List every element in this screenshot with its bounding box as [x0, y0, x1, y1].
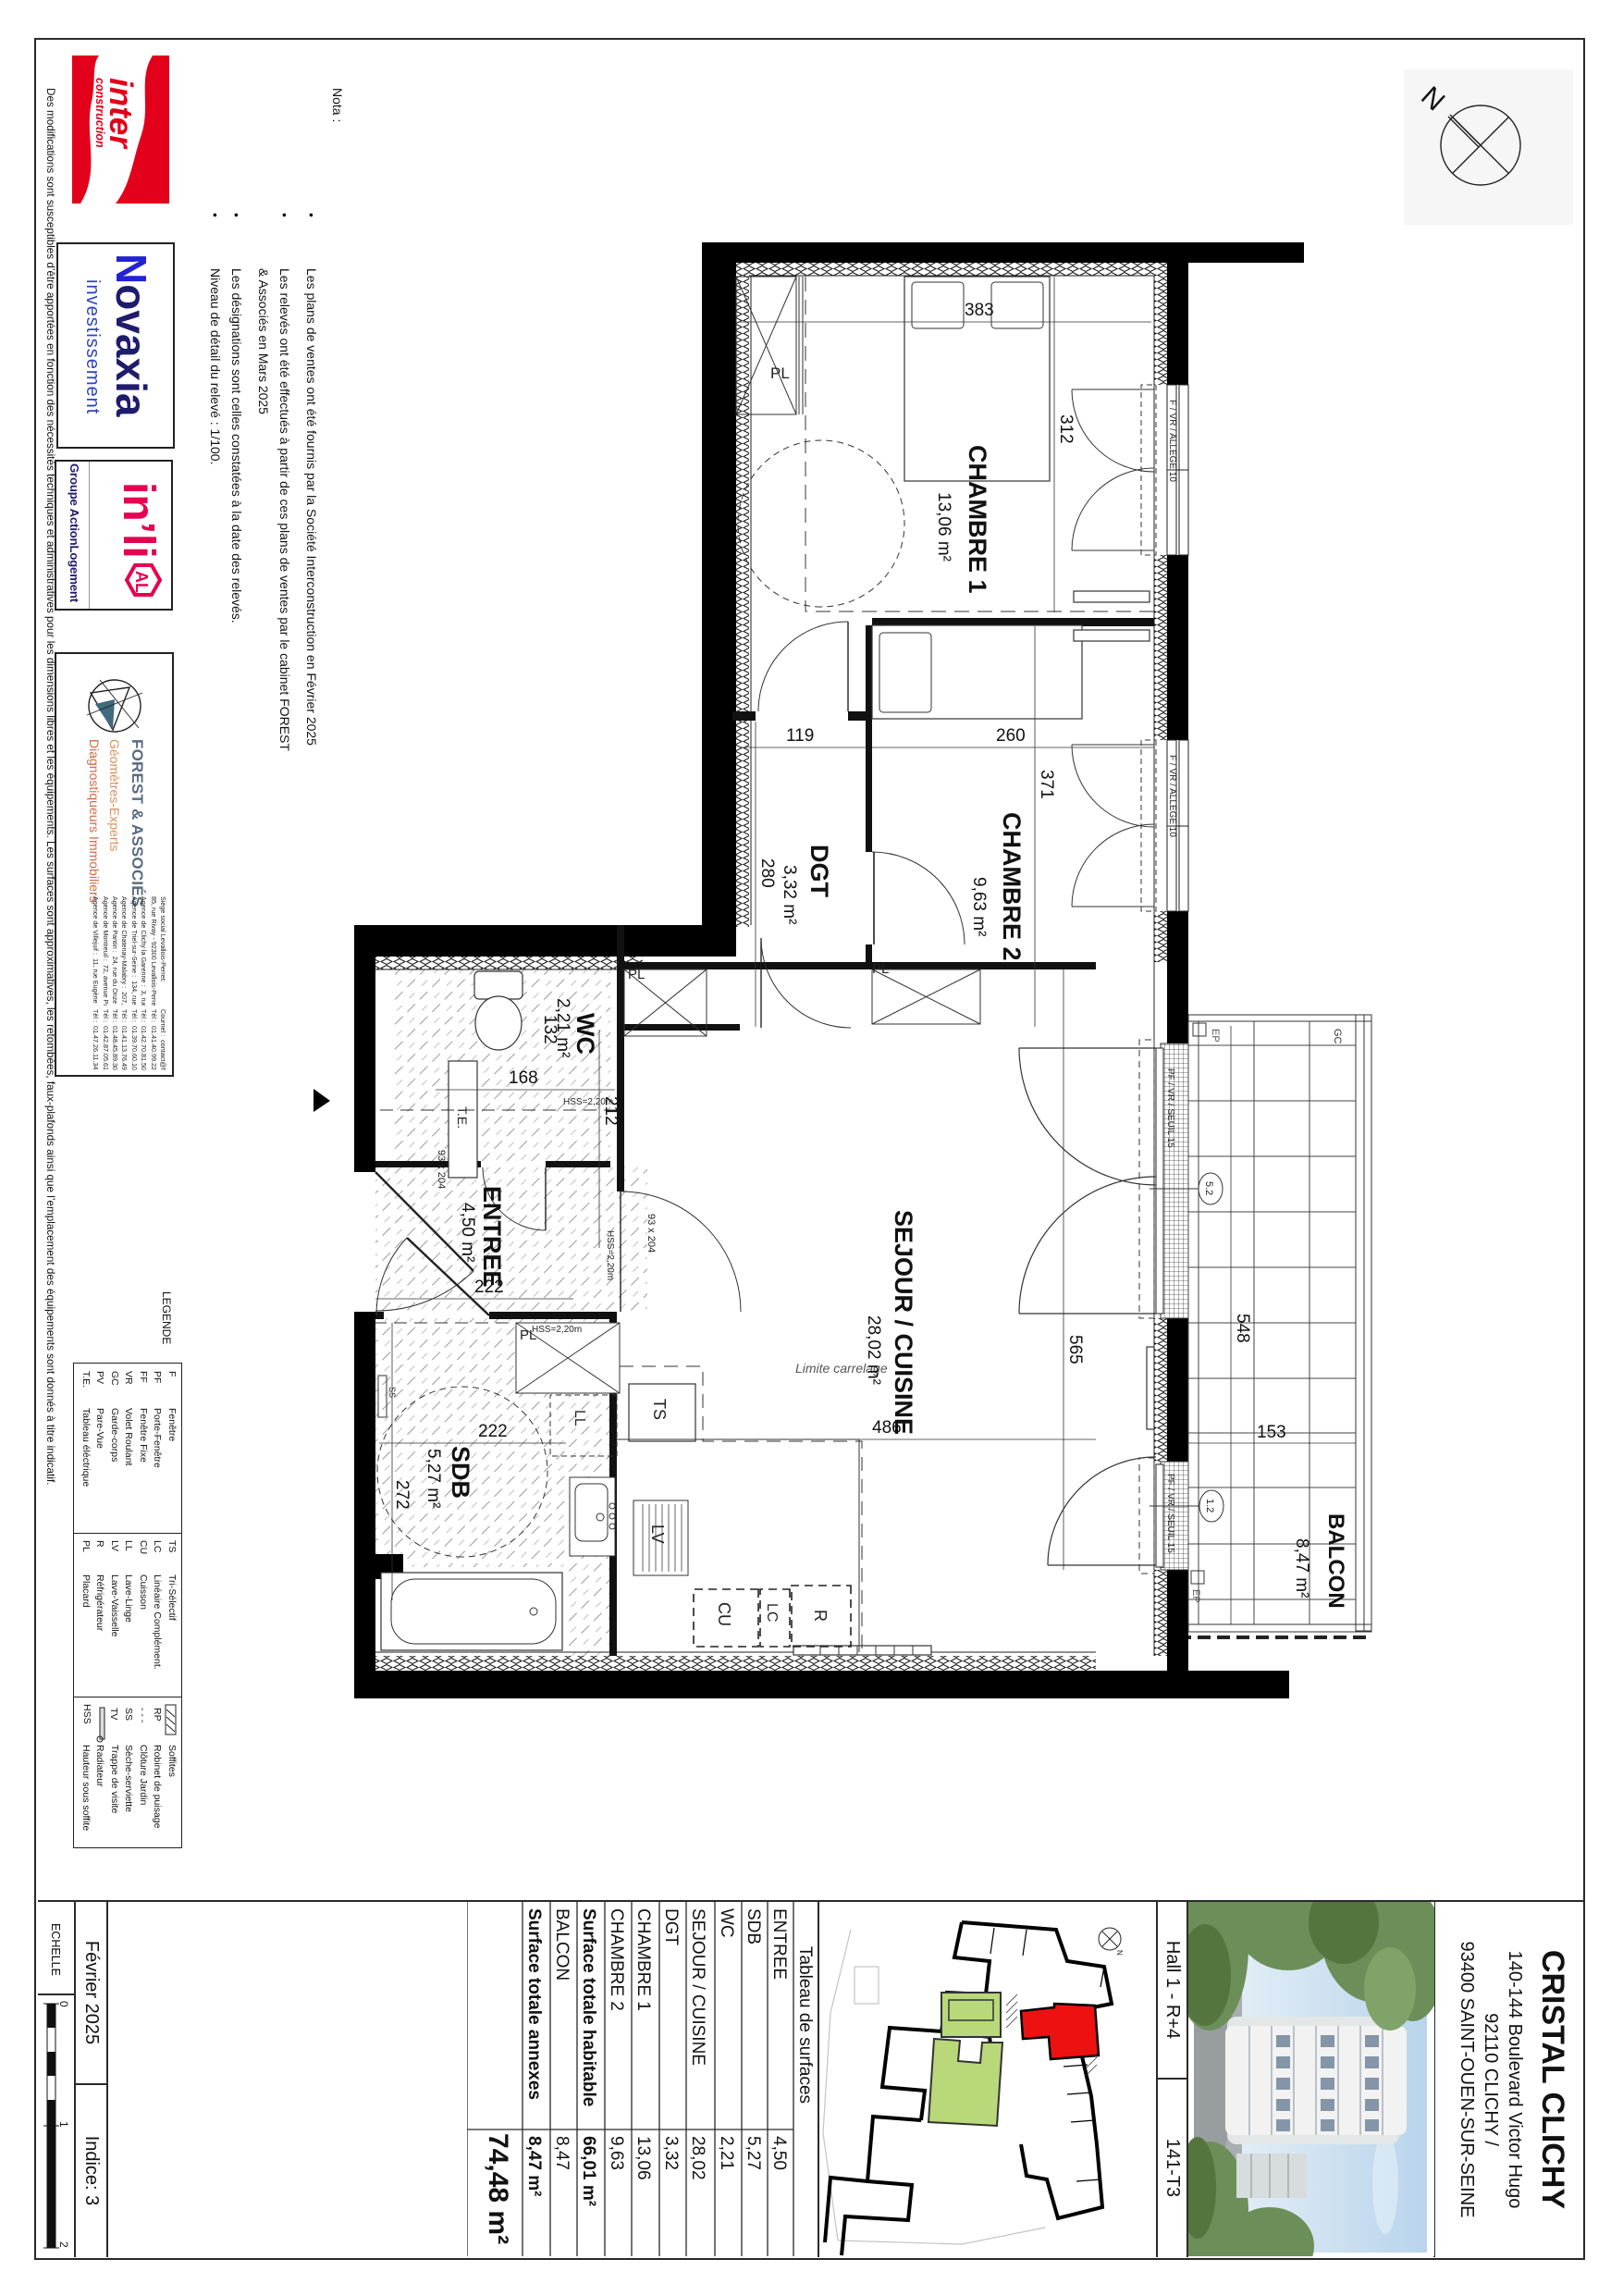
svg-text:74,48 m²: 74,48 m²: [483, 2133, 513, 2244]
svg-text:5.2: 5.2: [1203, 1181, 1214, 1195]
svg-text:DGT: DGT: [661, 1908, 681, 1946]
svg-text:8,47 m²: 8,47 m²: [524, 2136, 544, 2196]
svg-text:HSS=2,20m: HSS=2,20m: [532, 1325, 582, 1335]
svg-text:SDB: SDB: [447, 1446, 474, 1499]
svg-text:4,50 m²: 4,50 m²: [458, 1203, 477, 1262]
svg-text:212: 212: [601, 1096, 621, 1126]
svg-text:0: 0: [57, 2001, 70, 2007]
svg-text:CHAMBRE 2: CHAMBRE 2: [998, 812, 1026, 961]
svg-text:BALCON: BALCON: [1323, 1513, 1348, 1609]
svg-text:486: 486: [872, 1418, 902, 1438]
svg-text:5,27 m²: 5,27 m²: [424, 1449, 443, 1508]
svg-text:3,32 m²: 3,32 m²: [780, 865, 799, 924]
svg-text:PL: PL: [770, 364, 790, 382]
svg-text:inter: inter: [103, 78, 139, 150]
svg-text:CHAMBRE 2: CHAMBRE 2: [607, 1908, 626, 2011]
svg-text:2: 2: [57, 2241, 70, 2248]
svg-text:F / VR / ALLEGE 10: F / VR / ALLEGE 10: [1167, 400, 1177, 482]
svg-text:383: 383: [965, 301, 994, 320]
svg-text:SEJOUR / CUISINE: SEJOUR / CUISINE: [688, 1908, 707, 2066]
svg-text:HSS=2,20m: HSS=2,20m: [605, 1230, 615, 1280]
svg-text:8,47 m²: 8,47 m²: [1292, 1538, 1311, 1598]
svg-text:371: 371: [1037, 770, 1056, 799]
svg-text:ENTREE: ENTREE: [478, 1186, 506, 1288]
svg-text:SDB: SDB: [744, 1908, 763, 1944]
svg-text:Surface totale habitable: Surface totale habitable: [579, 1908, 598, 2106]
svg-text:548: 548: [1233, 1314, 1252, 1343]
svg-text:1.2: 1.2: [1204, 1499, 1215, 1512]
svg-text:Surface totale annexes: Surface totale annexes: [524, 1908, 544, 2100]
svg-text:2,21: 2,21: [717, 2136, 736, 2170]
svg-text:WC: WC: [717, 1908, 736, 1938]
svg-text:construction: construction: [93, 78, 106, 148]
svg-text:CU: CU: [715, 1602, 733, 1626]
svg-text:9,63: 9,63: [607, 2136, 626, 2170]
svg-text:Tableau de surfaces: Tableau de surfaces: [795, 1946, 815, 2104]
svg-text:93 x 204: 93 x 204: [436, 1150, 447, 1189]
svg-text:260: 260: [996, 726, 1026, 746]
svg-text:PL: PL: [872, 961, 889, 977]
svg-text:EP: EP: [1210, 1029, 1221, 1043]
svg-text:119: 119: [786, 726, 814, 746]
svg-text:PL: PL: [628, 967, 645, 982]
svg-text:28,02: 28,02: [688, 2136, 707, 2180]
svg-text:565: 565: [1065, 1335, 1085, 1364]
svg-text:BALCON: BALCON: [552, 1908, 572, 1981]
svg-text:8,47: 8,47: [552, 2136, 572, 2170]
svg-text:DGT: DGT: [805, 845, 833, 898]
svg-text:CHAMBRE 1: CHAMBRE 1: [964, 445, 991, 594]
svg-text:GC: GC: [1332, 1029, 1343, 1044]
svg-text:66,01 m²: 66,01 m²: [579, 2136, 598, 2206]
svg-text:ENTREE: ENTREE: [769, 1908, 789, 1980]
svg-text:9,63 m²: 9,63 m²: [969, 877, 989, 936]
svg-text:312: 312: [1056, 414, 1076, 444]
svg-text:5,27: 5,27: [744, 2136, 763, 2170]
svg-text:EP: EP: [1190, 1589, 1201, 1603]
svg-text:3,32: 3,32: [661, 2136, 681, 2170]
svg-text:WC: WC: [572, 1013, 599, 1055]
svg-text:168: 168: [509, 1068, 538, 1088]
svg-text:272: 272: [392, 1480, 412, 1510]
svg-text:R: R: [811, 1610, 830, 1622]
svg-text:280: 280: [757, 858, 777, 888]
svg-text:CHAMBRE 1: CHAMBRE 1: [633, 1908, 653, 2011]
svg-text:SEJOUR / CUISINE: SEJOUR / CUISINE: [890, 1210, 917, 1435]
svg-text:222: 222: [474, 1278, 504, 1297]
svg-text:93 x 204: 93 x 204: [646, 1214, 657, 1253]
svg-text:28,02 m²: 28,02 m²: [864, 1315, 883, 1385]
svg-text:TS: TS: [650, 1399, 669, 1420]
svg-text:PF / VR / SEUIL 15: PF / VR / SEUIL 15: [1165, 1068, 1175, 1148]
svg-text:132: 132: [540, 1015, 559, 1044]
svg-text:153: 153: [1257, 1423, 1286, 1442]
svg-text:13,06: 13,06: [633, 2136, 653, 2180]
svg-text:AL: AL: [132, 571, 151, 593]
svg-text:1: 1: [57, 2121, 70, 2128]
svg-text:13,06 m²: 13,06 m²: [934, 492, 953, 562]
svg-text:N: N: [1115, 1950, 1124, 1956]
svg-text:4,50: 4,50: [769, 2136, 789, 2170]
svg-text:PF / VR / SEUIL 15: PF / VR / SEUIL 15: [1165, 1474, 1175, 1553]
svg-text:LV: LV: [648, 1524, 667, 1544]
svg-text:222: 222: [478, 1422, 508, 1441]
svg-text:F / VR / ALLEGE 10: F / VR / ALLEGE 10: [1167, 755, 1177, 837]
svg-text:LC: LC: [764, 1603, 780, 1622]
svg-text:LL: LL: [572, 1410, 587, 1426]
